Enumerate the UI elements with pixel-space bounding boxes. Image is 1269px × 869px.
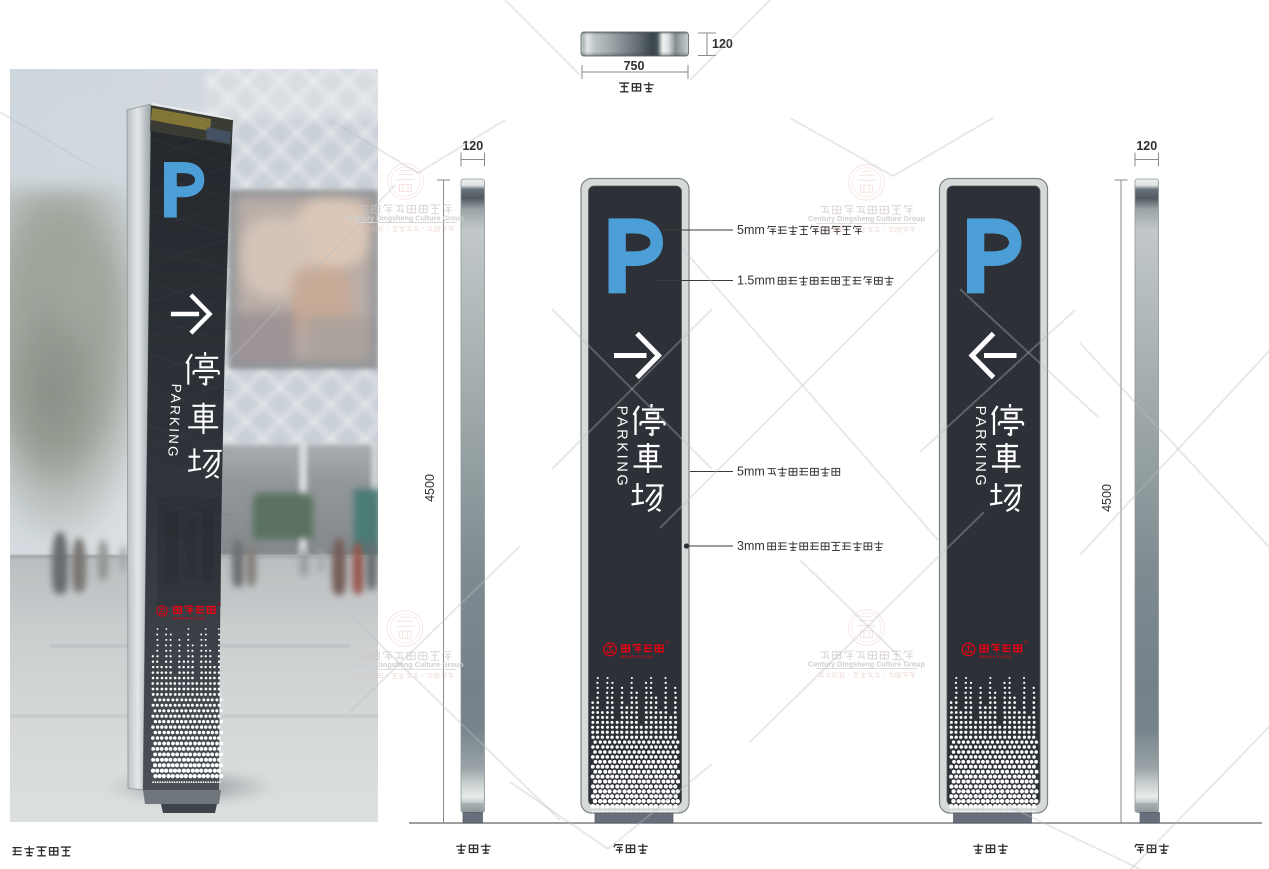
svg-text:PARKING: PARKING xyxy=(972,406,988,489)
svg-text:120: 120 xyxy=(1136,139,1157,153)
svg-text:WANDA PLAZA: WANDA PLAZA xyxy=(979,654,1012,659)
svg-text:WANDA PLAZA: WANDA PLAZA xyxy=(621,654,654,659)
svg-text:5mm: 5mm xyxy=(737,465,765,479)
svg-text:PARKING: PARKING xyxy=(613,406,629,489)
svg-text:1.5mm: 1.5mm xyxy=(737,274,775,288)
svg-text:3mm: 3mm xyxy=(737,539,765,553)
svg-text:4500: 4500 xyxy=(423,474,437,502)
svg-text:750: 750 xyxy=(624,59,645,73)
svg-text:120: 120 xyxy=(462,139,483,153)
svg-text:5mm: 5mm xyxy=(737,223,765,237)
svg-text:Century Dingsheng Culture Grou: Century Dingsheng Culture Group xyxy=(808,214,926,223)
svg-text:4500: 4500 xyxy=(1100,484,1114,512)
